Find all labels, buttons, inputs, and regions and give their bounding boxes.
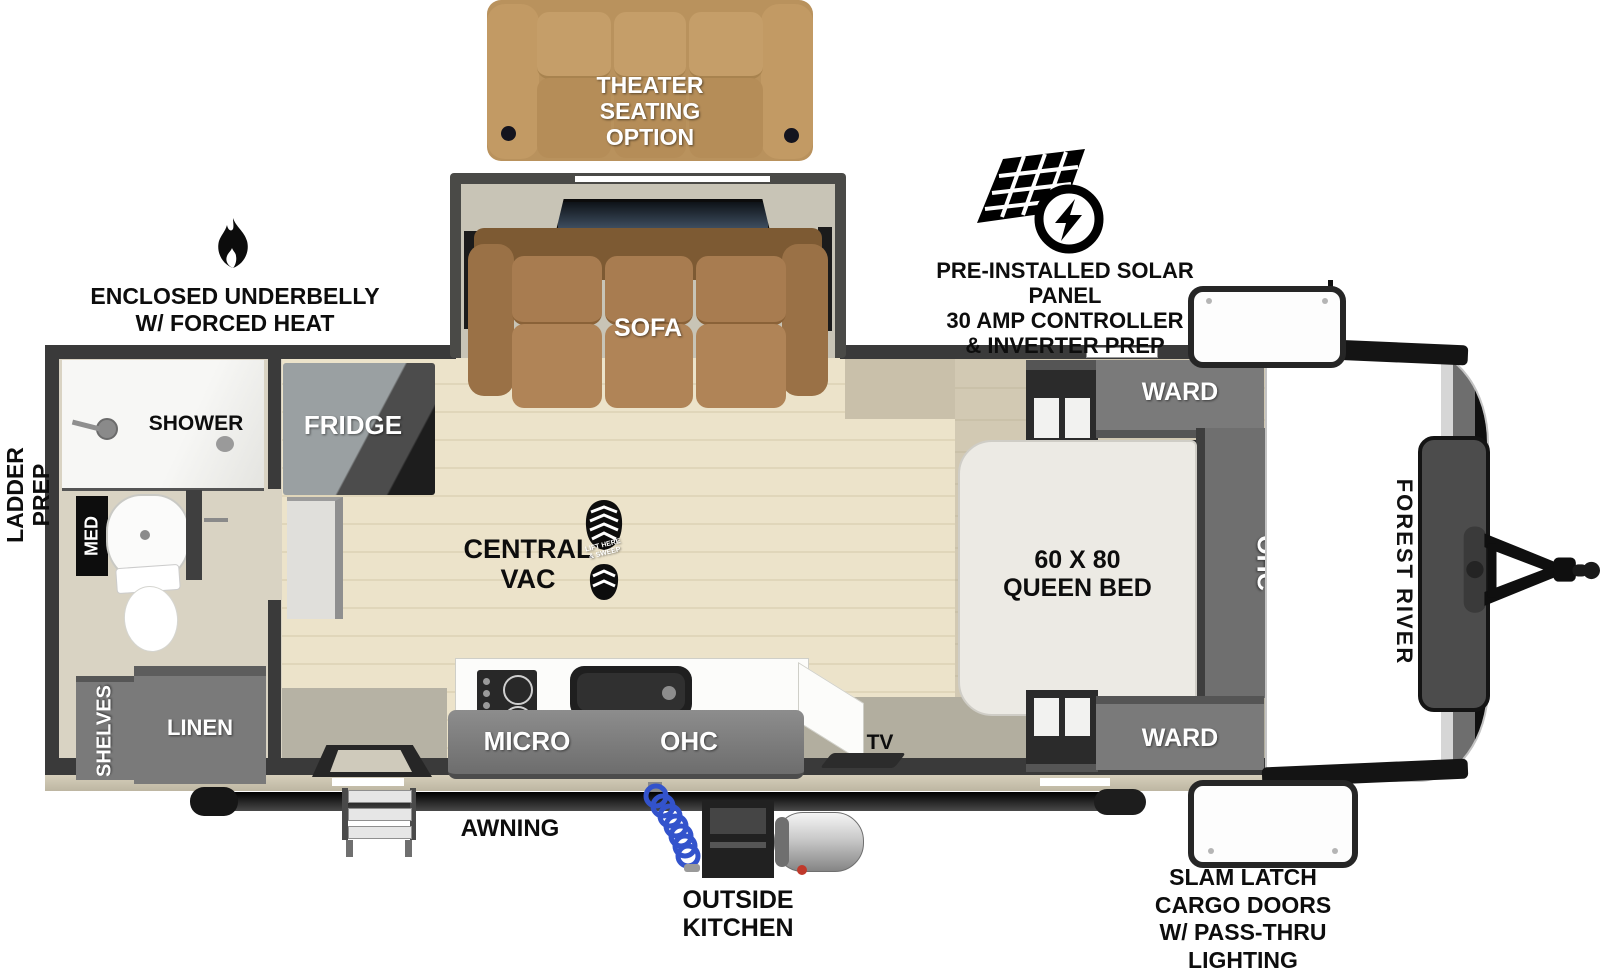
nightstand-door bbox=[1065, 398, 1090, 438]
outside-kitchen-griddle bbox=[774, 812, 864, 872]
ladder-prep-callout: LADDER PREP bbox=[2, 415, 58, 575]
sofa-arm-left bbox=[468, 244, 514, 396]
sofa-seat-cushion bbox=[696, 324, 786, 408]
linen-cabinet: LINEN bbox=[134, 666, 266, 784]
forest-river-wordmark: FOREST RIVER bbox=[1386, 430, 1422, 714]
solar-panel-icon bbox=[963, 143, 1113, 255]
shelves-cabinet: SHELVES bbox=[76, 676, 134, 780]
front-door-trim bbox=[1040, 778, 1110, 786]
vanity-side bbox=[186, 490, 202, 580]
theater-seating-label: THEATER SEATING OPTION bbox=[575, 72, 725, 150]
underbelly-callout: ENCLOSED UNDERBELLY W/ FORCED HEAT bbox=[55, 283, 415, 337]
med-label: MED bbox=[82, 516, 103, 556]
queen-bed: 60 X 80 QUEEN BED bbox=[958, 440, 1197, 716]
central-vac-boot-icon: LIFT HERE & SWEEP bbox=[578, 498, 630, 602]
shower-drain bbox=[216, 436, 234, 452]
kitchen-faucet bbox=[662, 686, 676, 700]
awning-roller-end-left bbox=[190, 787, 238, 816]
brand-label: FOREST RIVER bbox=[1391, 479, 1417, 666]
coiled-hose-icon bbox=[636, 782, 706, 874]
kitchen-ohc-band: MICRO OHC bbox=[448, 710, 804, 779]
sofa-back-cushion bbox=[512, 256, 602, 325]
bed-label: 60 X 80 QUEEN BED bbox=[960, 546, 1195, 602]
ward-top-label: WARD bbox=[1096, 378, 1264, 406]
cargo-doors-callout: SLAM LATCH CARGO DOORS W/ PASS-THRU LIGH… bbox=[1088, 864, 1398, 974]
sofa-arm-right bbox=[782, 244, 828, 396]
fridge-label: FRIDGE bbox=[293, 411, 413, 440]
slideout-top-trim bbox=[575, 176, 770, 182]
bathroom-divider-wall-upper bbox=[268, 357, 281, 489]
burner-icon bbox=[503, 675, 533, 705]
recliner-button bbox=[501, 126, 516, 141]
nightstand-top bbox=[1026, 360, 1098, 452]
pantry-cabinet bbox=[287, 497, 343, 619]
theater-back-cushion bbox=[689, 12, 763, 79]
solar-callout: PRE-INSTALLED SOLAR PANEL 30 AMP CONTROL… bbox=[915, 258, 1215, 358]
tv-label: TV bbox=[850, 731, 910, 755]
nightstand-door bbox=[1034, 698, 1059, 736]
nightstand-door bbox=[1034, 398, 1059, 438]
nightstand-bottom bbox=[1026, 690, 1098, 772]
entry-step-well-inner bbox=[330, 750, 412, 772]
cooktop-knobs bbox=[483, 678, 490, 685]
shelves-label: SHELVES bbox=[94, 685, 117, 777]
sofa: SOFA bbox=[468, 228, 828, 408]
entry-door-trim bbox=[332, 778, 404, 786]
theater-back-cushion bbox=[614, 12, 686, 79]
recliner-button bbox=[784, 128, 799, 143]
hitch-icon bbox=[1462, 492, 1600, 642]
outside-kitchen-callout: OUTSIDE KITCHEN bbox=[648, 886, 828, 942]
kitchen-ohc-label: OHC bbox=[644, 727, 734, 756]
entry-steps bbox=[340, 788, 418, 860]
sofa-back-cushion bbox=[696, 256, 786, 325]
top-wall-left bbox=[45, 345, 456, 359]
wardrobe-top: WARD bbox=[1096, 360, 1264, 438]
theater-seating-option: THEATER SEATING OPTION bbox=[487, 0, 813, 161]
sofa-label: SOFA bbox=[598, 314, 698, 342]
ward-bottom-label: WARD bbox=[1096, 724, 1264, 752]
flame-icon bbox=[207, 216, 259, 282]
towel-bar bbox=[204, 518, 228, 522]
shower-label: SHOWER bbox=[126, 412, 266, 436]
nightstand-door bbox=[1065, 698, 1090, 736]
cargo-door-bottom bbox=[1188, 780, 1358, 868]
sink-faucet bbox=[140, 530, 150, 540]
fridge: FRIDGE bbox=[283, 363, 435, 495]
micro-label: MICRO bbox=[477, 727, 577, 756]
bathroom-divider-wall-lower bbox=[268, 600, 281, 758]
rv-floorplan: SHOWER MED SHELVES LINEN FRIDGE MICRO OH… bbox=[0, 0, 1600, 977]
awning-roller-end-right bbox=[1094, 789, 1146, 815]
outside-kitchen-unit bbox=[702, 800, 774, 878]
medicine-cabinet: MED bbox=[76, 496, 108, 576]
sofa-seat-cushion bbox=[512, 324, 602, 408]
awning-callout: AWNING bbox=[440, 816, 580, 843]
theater-back-cushion bbox=[537, 12, 611, 79]
wardrobe-bottom: WARD bbox=[1096, 696, 1264, 770]
linen-label: LINEN bbox=[134, 716, 266, 741]
tv bbox=[820, 753, 906, 768]
valve-red bbox=[797, 865, 807, 875]
